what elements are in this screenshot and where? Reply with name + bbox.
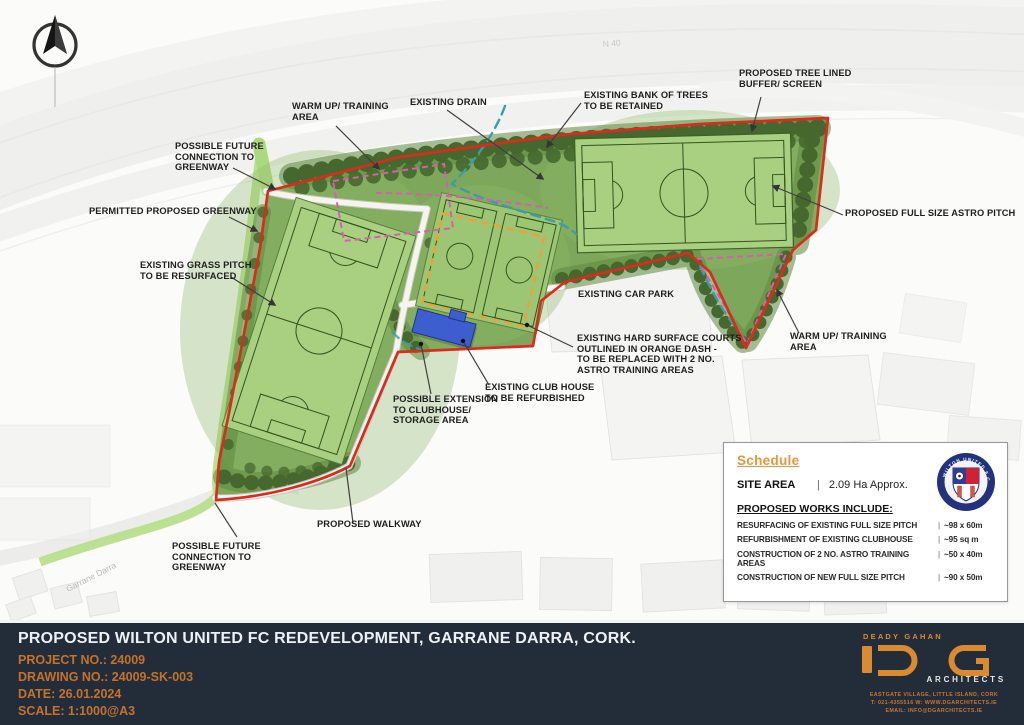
drawing-date: DATE: 26.01.2024: [18, 686, 193, 703]
drawing-no: DRAWING NO.: 24009-SK-003: [18, 669, 193, 686]
annotation-warm-up-area-top: WARM UP/ TRAINING AREA: [292, 101, 389, 122]
work-item: RESURFACING OF EXISTING FULL SIZE PITCH: [737, 521, 934, 530]
site-area-label: SITE AREA: [737, 479, 815, 491]
logo-address-line2: T: 021-4355516 W: WWW.DGARCHITECTS.IE: [860, 699, 1008, 707]
work-dimension: ~95 sq m: [944, 535, 994, 544]
annotation-tree-lined-buffer: PROPOSED TREE LINED BUFFER/ SCREEN: [739, 68, 851, 89]
separator: |: [938, 573, 940, 582]
annotation-existing-club-house: EXISTING CLUB HOUSE TO BE REFURBISHED: [485, 382, 594, 403]
separator: |: [938, 550, 940, 559]
logo-address-line3: EMAIL: INFO@DGARCHITECTS.IE: [860, 707, 1008, 715]
drawing-sheet: N 40 Garra: [0, 0, 1024, 725]
drawing-scale: SCALE: 1:1000@A3: [18, 703, 193, 720]
architect-logo: DEADY GAHAN ARCHITECTS EASTGATE VILLAGE,…: [860, 632, 1008, 716]
work-item: CONSTRUCTION OF 2 NO. ASTRO TRAINING ARE…: [737, 550, 934, 568]
logo-firm-name: DEADY GAHAN: [860, 632, 1008, 641]
dg-logo-icon: [860, 641, 994, 677]
work-item: REFURBISHMENT OF EXISTING CLUBHOUSE: [737, 535, 934, 544]
work-dimension: ~50 x 40m: [944, 550, 994, 559]
annotation-warm-up-area-right: WARM UP/ TRAINING AREA: [790, 331, 887, 352]
separator: |: [817, 479, 820, 491]
works-row: CONSTRUCTION OF 2 NO. ASTRO TRAINING ARE…: [737, 550, 994, 568]
work-dimension: ~98 x 60m: [944, 521, 994, 530]
logo-address-line1: EASTGATE VILLAGE, LITTLE ISLAND, CORK: [860, 691, 1008, 699]
annotation-existing-drain: EXISTING DRAIN: [410, 97, 487, 108]
title-block: PROPOSED WILTON UNITED FC REDEVELOPMENT,…: [0, 620, 1024, 725]
drawing-title: PROPOSED WILTON UNITED FC REDEVELOPMENT,…: [18, 630, 636, 648]
annotation-bank-of-trees: EXISTING BANK OF TREES TO BE RETAINED: [584, 90, 708, 111]
annotation-proposed-walkway: PROPOSED WALKWAY: [317, 519, 422, 530]
project-no: PROJECT NO.: 24009: [18, 652, 193, 669]
astro-pitch: [575, 133, 794, 253]
annotation-permitted-greenway: PERMITTED PROPOSED GREENWAY: [89, 206, 257, 217]
site-area-value: 2.09 Ha Approx.: [829, 479, 908, 491]
annotation-hard-surface-courts: EXISTING HARD SURFACE COURTS OUTLINED IN…: [577, 333, 741, 376]
annotation-future-connection-top: POSSIBLE FUTURE CONNECTION TO GREENWAY: [175, 141, 264, 173]
separator: |: [938, 535, 940, 544]
schedule-panel: Schedule SITE AREA | 2.09 Ha Approx. PRO…: [723, 442, 1008, 602]
work-item: CONSTRUCTION OF NEW FULL SIZE PITCH: [737, 573, 934, 582]
works-row: REFURBISHMENT OF EXISTING CLUBHOUSE | ~9…: [737, 535, 994, 544]
work-dimension: ~90 x 50m: [944, 573, 994, 582]
works-row: RESURFACING OF EXISTING FULL SIZE PITCH …: [737, 521, 994, 530]
n40-road-label: N 40: [602, 37, 621, 49]
club-crest-icon: WILTON UNITED F.C.: [935, 450, 997, 514]
annotation-full-size-astro: PROPOSED FULL SIZE ASTRO PITCH: [845, 208, 1015, 219]
annotation-existing-grass-pitch: EXISTING GRASS PITCH TO BE RESURFACED: [140, 260, 252, 281]
works-row: CONSTRUCTION OF NEW FULL SIZE PITCH | ~9…: [737, 573, 994, 582]
annotation-existing-car-park: EXISTING CAR PARK: [578, 289, 674, 300]
annotation-future-connection-bottom: POSSIBLE FUTURE CONNECTION TO GREENWAY: [172, 541, 261, 573]
separator: |: [938, 521, 940, 530]
annotation-possible-extension: POSSIBLE EXTENSION TO CLUBHOUSE/ STORAGE…: [393, 394, 498, 426]
